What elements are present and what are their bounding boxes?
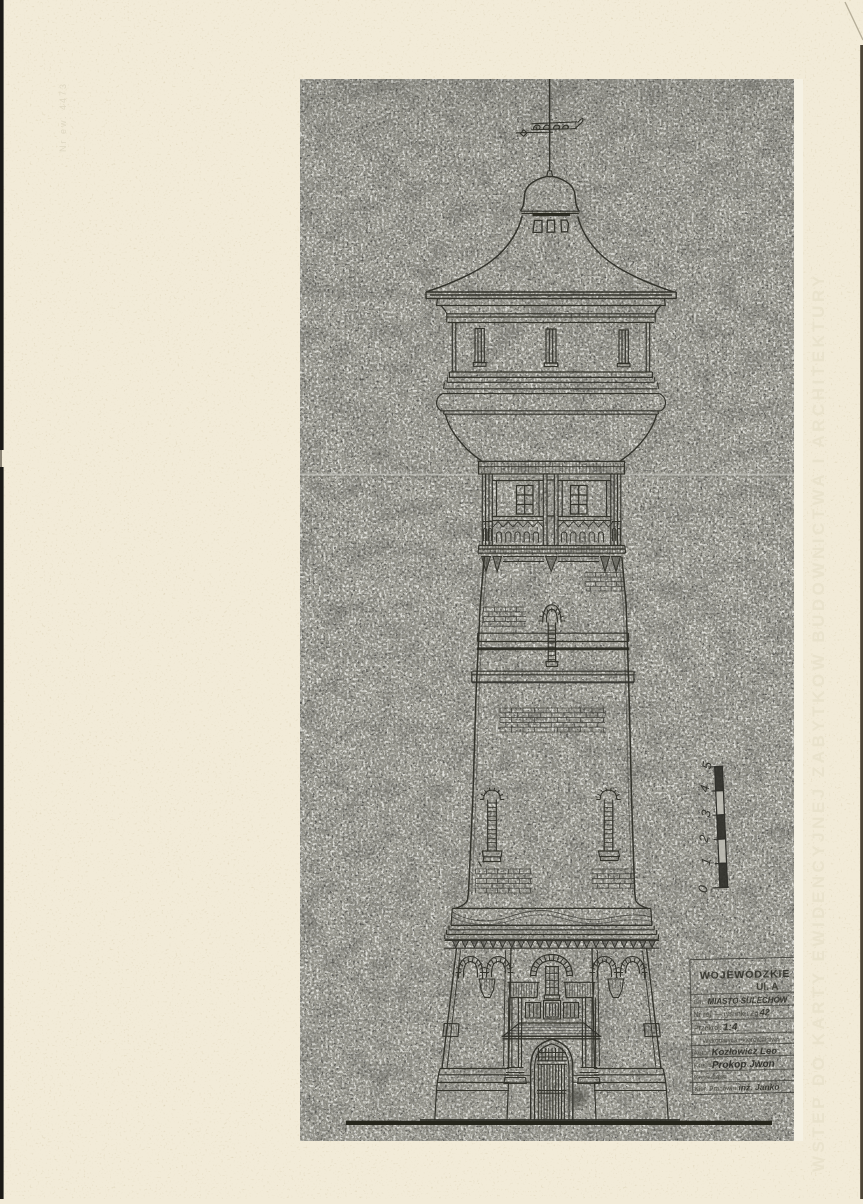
svg-text:WSTEP DO KARTY EWIDENCYJNEJ ZA: WSTEP DO KARTY EWIDENCYJNEJ ZABYTKOW BUD… (809, 272, 828, 1172)
svg-text:Autor:: Autor: (694, 1050, 712, 1057)
svg-text:inż. Janko: inż. Janko (738, 1082, 779, 1093)
svg-text:Ul. A: Ul. A (756, 982, 779, 994)
svg-text:Gm.: Gm. (693, 1000, 705, 1006)
svg-text:Nr ew. 4473: Nr ew. 4473 (58, 82, 68, 152)
svg-text:42: 42 (759, 1007, 770, 1017)
svg-text:Kozłowicz Leo: Kozłowicz Leo (711, 1046, 777, 1058)
svg-text:Konsultant:: Konsultant: (694, 1074, 727, 1082)
svg-text:Przekrój:: Przekrój: (694, 1025, 722, 1033)
svg-text:Prokop Jwon: Prokop Jwon (712, 1059, 775, 1071)
svg-text:Kreślił: Kreślił (694, 1062, 712, 1069)
svg-text:MIASTO SULECHÓW: MIASTO SULECHÓW (707, 995, 788, 1006)
svg-text:Kier. Pracowni: Kier. Pracowni (694, 1085, 736, 1093)
svg-text:1:4: 1:4 (723, 1022, 738, 1033)
